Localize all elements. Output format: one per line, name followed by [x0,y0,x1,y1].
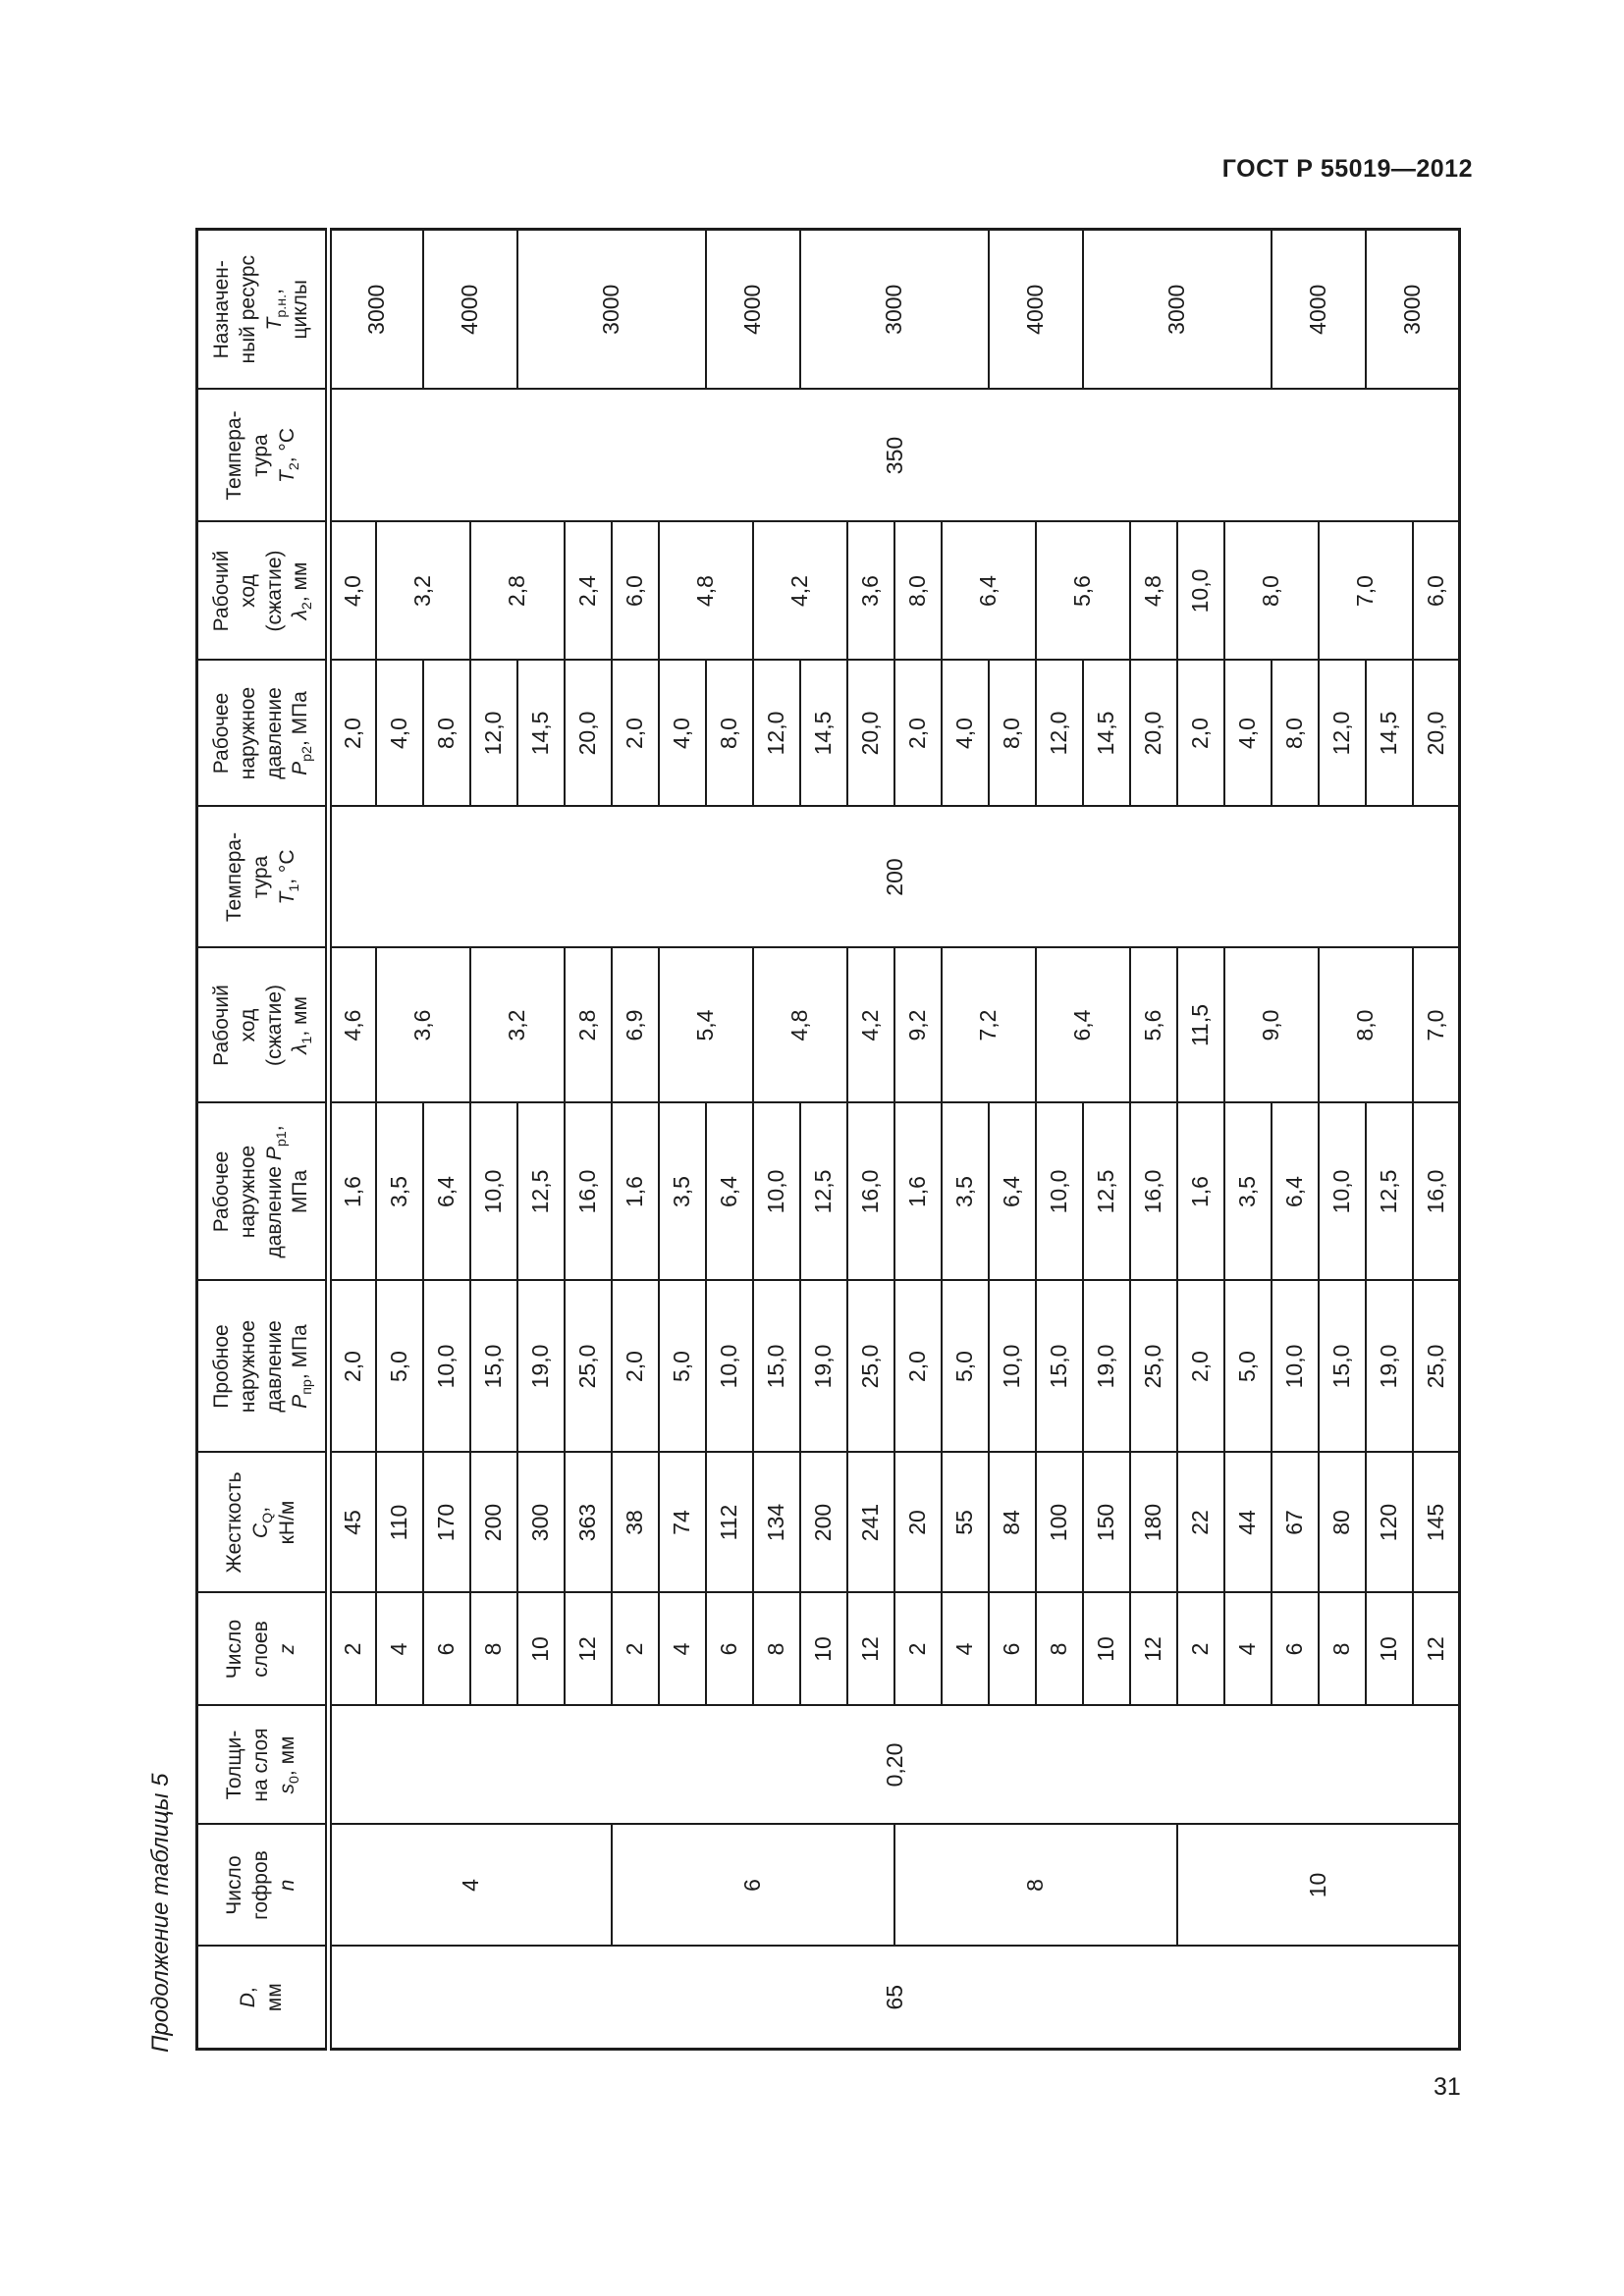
cell-z: 12 [1130,1593,1177,1706]
rotated-table-container: D,ммЧислогофровnТолщи-на слояs0, ммЧисло… [195,228,1461,2051]
cell-l2: 6,0 [1413,522,1460,661]
cell-s0: 0,20 [329,1706,1460,1825]
cell-pp2: 2,0 [612,661,659,807]
cell-cq: 67 [1272,1453,1319,1593]
cell-pp2: 8,0 [1272,661,1319,807]
cell-pp1: 10,0 [470,1103,517,1281]
cell-l2: 4,8 [1130,522,1177,661]
cell-l1: 4,6 [329,948,376,1103]
cell-z: 2 [329,1593,376,1706]
cell-z: 10 [517,1593,565,1706]
cell-ppr: 2,0 [329,1281,376,1453]
cell-l1: 3,6 [376,948,470,1103]
cell-z: 10 [800,1593,847,1706]
cell-t2: 350 [329,390,1460,522]
cell-l1: 6,4 [1036,948,1130,1103]
header-ppr: ПробноенаружноедавлениеPпр, МПа [197,1281,329,1453]
cell-l1: 6,9 [612,948,659,1103]
cell-cq: 80 [1319,1453,1366,1593]
header-pp2: РабочеенаружноедавлениеPр2, МПа [197,661,329,807]
cell-ppr: 5,0 [659,1281,706,1453]
cell-z: 6 [1272,1593,1319,1706]
cell-l2: 10,0 [1177,522,1224,661]
cell-pp1: 6,4 [706,1103,753,1281]
cell-n: 4 [329,1825,612,1947]
cell-ppr: 5,0 [376,1281,423,1453]
cell-cq: 200 [470,1453,517,1593]
cell-pp2: 12,0 [753,661,800,807]
cell-cq: 241 [847,1453,894,1593]
cell-pp1: 3,5 [1224,1103,1272,1281]
cell-l1: 7,2 [942,948,1036,1103]
cell-pp2: 4,0 [659,661,706,807]
cell-z: 8 [753,1593,800,1706]
cell-z: 12 [565,1593,612,1706]
cell-pp1: 6,4 [989,1103,1036,1281]
cell-pp1: 12,5 [1083,1103,1130,1281]
cell-cq: 84 [989,1453,1036,1593]
cell-pp1: 16,0 [1413,1103,1460,1281]
page: ГОСТ Р 55019—2012 Продолжение таблицы 5 … [0,0,1624,2296]
cell-z: 6 [423,1593,470,1706]
cell-pp1: 12,5 [1366,1103,1413,1281]
cell-l1: 4,2 [847,948,894,1103]
cell-l1: 3,2 [470,948,565,1103]
cell-ppr: 25,0 [565,1281,612,1453]
cell-l1: 9,0 [1224,948,1319,1103]
cell-res: 3000 [517,230,706,390]
cell-cq: 44 [1224,1453,1272,1593]
cell-pp2: 8,0 [423,661,470,807]
document-code: ГОСТ Р 55019—2012 [1178,155,1473,184]
cell-ppr: 15,0 [470,1281,517,1453]
header-pp1: Рабочеенаружноедавление Pр1,МПа [197,1103,329,1281]
cell-z: 12 [847,1593,894,1706]
cell-cq: 20 [894,1453,942,1593]
cell-pp2: 20,0 [847,661,894,807]
cell-pp2: 2,0 [1177,661,1224,807]
cell-cq: 134 [753,1453,800,1593]
data-table: D,ммЧислогофровnТолщи-на слояs0, ммЧисло… [195,228,1461,2051]
cell-ppr: 10,0 [989,1281,1036,1453]
cell-cq: 110 [376,1453,423,1593]
table-row: 6540,202452,01,64,62002,04,03503000 [329,230,376,2050]
cell-l1: 8,0 [1319,948,1413,1103]
cell-l2: 8,0 [894,522,942,661]
cell-res: 3000 [329,230,423,390]
cell-l2: 4,8 [659,522,753,661]
cell-res: 3000 [800,230,989,390]
cell-z: 10 [1366,1593,1413,1706]
cell-l2: 2,4 [565,522,612,661]
cell-cq: 22 [1177,1453,1224,1593]
cell-cq: 45 [329,1453,376,1593]
cell-z: 8 [1319,1593,1366,1706]
cell-pp2: 12,0 [470,661,517,807]
cell-pp1: 3,5 [376,1103,423,1281]
cell-z: 12 [1413,1593,1460,1706]
cell-z: 6 [989,1593,1036,1706]
cell-pp2: 4,0 [942,661,989,807]
cell-pp1: 12,5 [517,1103,565,1281]
cell-ppr: 15,0 [753,1281,800,1453]
cell-z: 2 [612,1593,659,1706]
header-cq: ЖесткостьCQ,кН/м [197,1453,329,1593]
cell-ppr: 15,0 [1319,1281,1366,1453]
cell-z: 4 [659,1593,706,1706]
cell-pp1: 16,0 [565,1103,612,1281]
cell-ppr: 25,0 [1130,1281,1177,1453]
cell-z: 2 [894,1593,942,1706]
cell-res: 3000 [1083,230,1272,390]
cell-pp1: 10,0 [753,1103,800,1281]
table-caption: Продолжение таблицы 5 [147,1774,175,2053]
cell-ppr: 2,0 [1177,1281,1224,1453]
cell-ppr: 19,0 [1366,1281,1413,1453]
cell-l1: 5,4 [659,948,753,1103]
cell-pp2: 8,0 [706,661,753,807]
cell-l2: 7,0 [1319,522,1413,661]
cell-res: 4000 [989,230,1083,390]
cell-ppr: 19,0 [517,1281,565,1453]
cell-n: 10 [1177,1825,1460,1947]
cell-cq: 145 [1413,1453,1460,1593]
cell-d: 65 [329,1947,1460,2050]
header-t1: Темпера-тураT1, °C [197,807,329,948]
header-s0: Толщи-на слояs0, мм [197,1706,329,1825]
cell-pp1: 6,4 [423,1103,470,1281]
header-l2: Рабочийход(сжатие)λ2, мм [197,522,329,661]
cell-ppr: 2,0 [612,1281,659,1453]
cell-ppr: 10,0 [423,1281,470,1453]
cell-cq: 300 [517,1453,565,1593]
cell-l1: 4,8 [753,948,847,1103]
cell-l1: 5,6 [1130,948,1177,1103]
cell-pp2: 14,5 [517,661,565,807]
cell-pp2: 20,0 [565,661,612,807]
cell-pp2: 14,5 [800,661,847,807]
cell-pp1: 1,6 [612,1103,659,1281]
cell-pp1: 10,0 [1036,1103,1083,1281]
cell-pp1: 12,5 [800,1103,847,1281]
cell-pp2: 20,0 [1413,661,1460,807]
cell-cq: 150 [1083,1453,1130,1593]
cell-l2: 8,0 [1224,522,1319,661]
cell-pp2: 20,0 [1130,661,1177,807]
header-d: D,мм [197,1947,329,2050]
cell-pp2: 12,0 [1319,661,1366,807]
cell-ppr: 5,0 [1224,1281,1272,1453]
cell-pp2: 14,5 [1366,661,1413,807]
cell-pp1: 16,0 [1130,1103,1177,1281]
cell-cq: 180 [1130,1453,1177,1593]
cell-cq: 200 [800,1453,847,1593]
header-res: Назначен-ный ресурсTр.н.,циклы [197,230,329,390]
cell-cq: 100 [1036,1453,1083,1593]
cell-l1: 2,8 [565,948,612,1103]
cell-pp2: 2,0 [329,661,376,807]
cell-cq: 38 [612,1453,659,1593]
cell-l2: 6,0 [612,522,659,661]
cell-l2: 3,2 [376,522,470,661]
cell-l2: 2,8 [470,522,565,661]
cell-pp1: 1,6 [1177,1103,1224,1281]
cell-cq: 112 [706,1453,753,1593]
cell-l2: 3,6 [847,522,894,661]
cell-l2: 6,4 [942,522,1036,661]
cell-pp1: 1,6 [329,1103,376,1281]
cell-z: 2 [1177,1593,1224,1706]
header-z: Числослоевz [197,1593,329,1706]
cell-ppr: 25,0 [847,1281,894,1453]
cell-z: 4 [942,1593,989,1706]
cell-z: 10 [1083,1593,1130,1706]
cell-res: 4000 [423,230,517,390]
cell-l1: 7,0 [1413,948,1460,1103]
cell-l1: 9,2 [894,948,942,1103]
cell-pp2: 12,0 [1036,661,1083,807]
cell-l2: 5,6 [1036,522,1130,661]
cell-z: 8 [1036,1593,1083,1706]
cell-z: 4 [376,1593,423,1706]
cell-l2: 4,2 [753,522,847,661]
cell-ppr: 10,0 [1272,1281,1319,1453]
cell-z: 4 [1224,1593,1272,1706]
cell-z: 8 [470,1593,517,1706]
cell-cq: 363 [565,1453,612,1593]
cell-pp2: 8,0 [989,661,1036,807]
cell-ppr: 2,0 [894,1281,942,1453]
cell-pp1: 1,6 [894,1103,942,1281]
cell-pp1: 16,0 [847,1103,894,1281]
cell-ppr: 19,0 [1083,1281,1130,1453]
cell-n: 6 [612,1825,894,1947]
cell-res: 4000 [706,230,800,390]
cell-z: 6 [706,1593,753,1706]
cell-pp2: 2,0 [894,661,942,807]
cell-res: 4000 [1272,230,1366,390]
header-t2: Темпера-тураT2, °C [197,390,329,522]
cell-pp1: 3,5 [942,1103,989,1281]
cell-ppr: 15,0 [1036,1281,1083,1453]
header-l1: Рабочийход(сжатие)λ1, мм [197,948,329,1103]
cell-pp2: 4,0 [1224,661,1272,807]
cell-cq: 120 [1366,1453,1413,1593]
cell-l1: 11,5 [1177,948,1224,1103]
cell-l2: 4,0 [329,522,376,661]
cell-ppr: 19,0 [800,1281,847,1453]
cell-cq: 170 [423,1453,470,1593]
page-number: 31 [1434,2073,1461,2102]
cell-pp1: 6,4 [1272,1103,1319,1281]
cell-pp1: 3,5 [659,1103,706,1281]
cell-pp1: 10,0 [1319,1103,1366,1281]
cell-n: 8 [894,1825,1177,1947]
cell-ppr: 25,0 [1413,1281,1460,1453]
header-row: D,ммЧислогофровnТолщи-на слояs0, ммЧисло… [197,230,329,2050]
cell-t1: 200 [329,807,1460,948]
cell-ppr: 5,0 [942,1281,989,1453]
header-n: Числогофровn [197,1825,329,1947]
cell-pp2: 4,0 [376,661,423,807]
cell-pp2: 14,5 [1083,661,1130,807]
cell-cq: 74 [659,1453,706,1593]
cell-ppr: 10,0 [706,1281,753,1453]
cell-cq: 55 [942,1453,989,1593]
cell-res: 3000 [1366,230,1460,390]
